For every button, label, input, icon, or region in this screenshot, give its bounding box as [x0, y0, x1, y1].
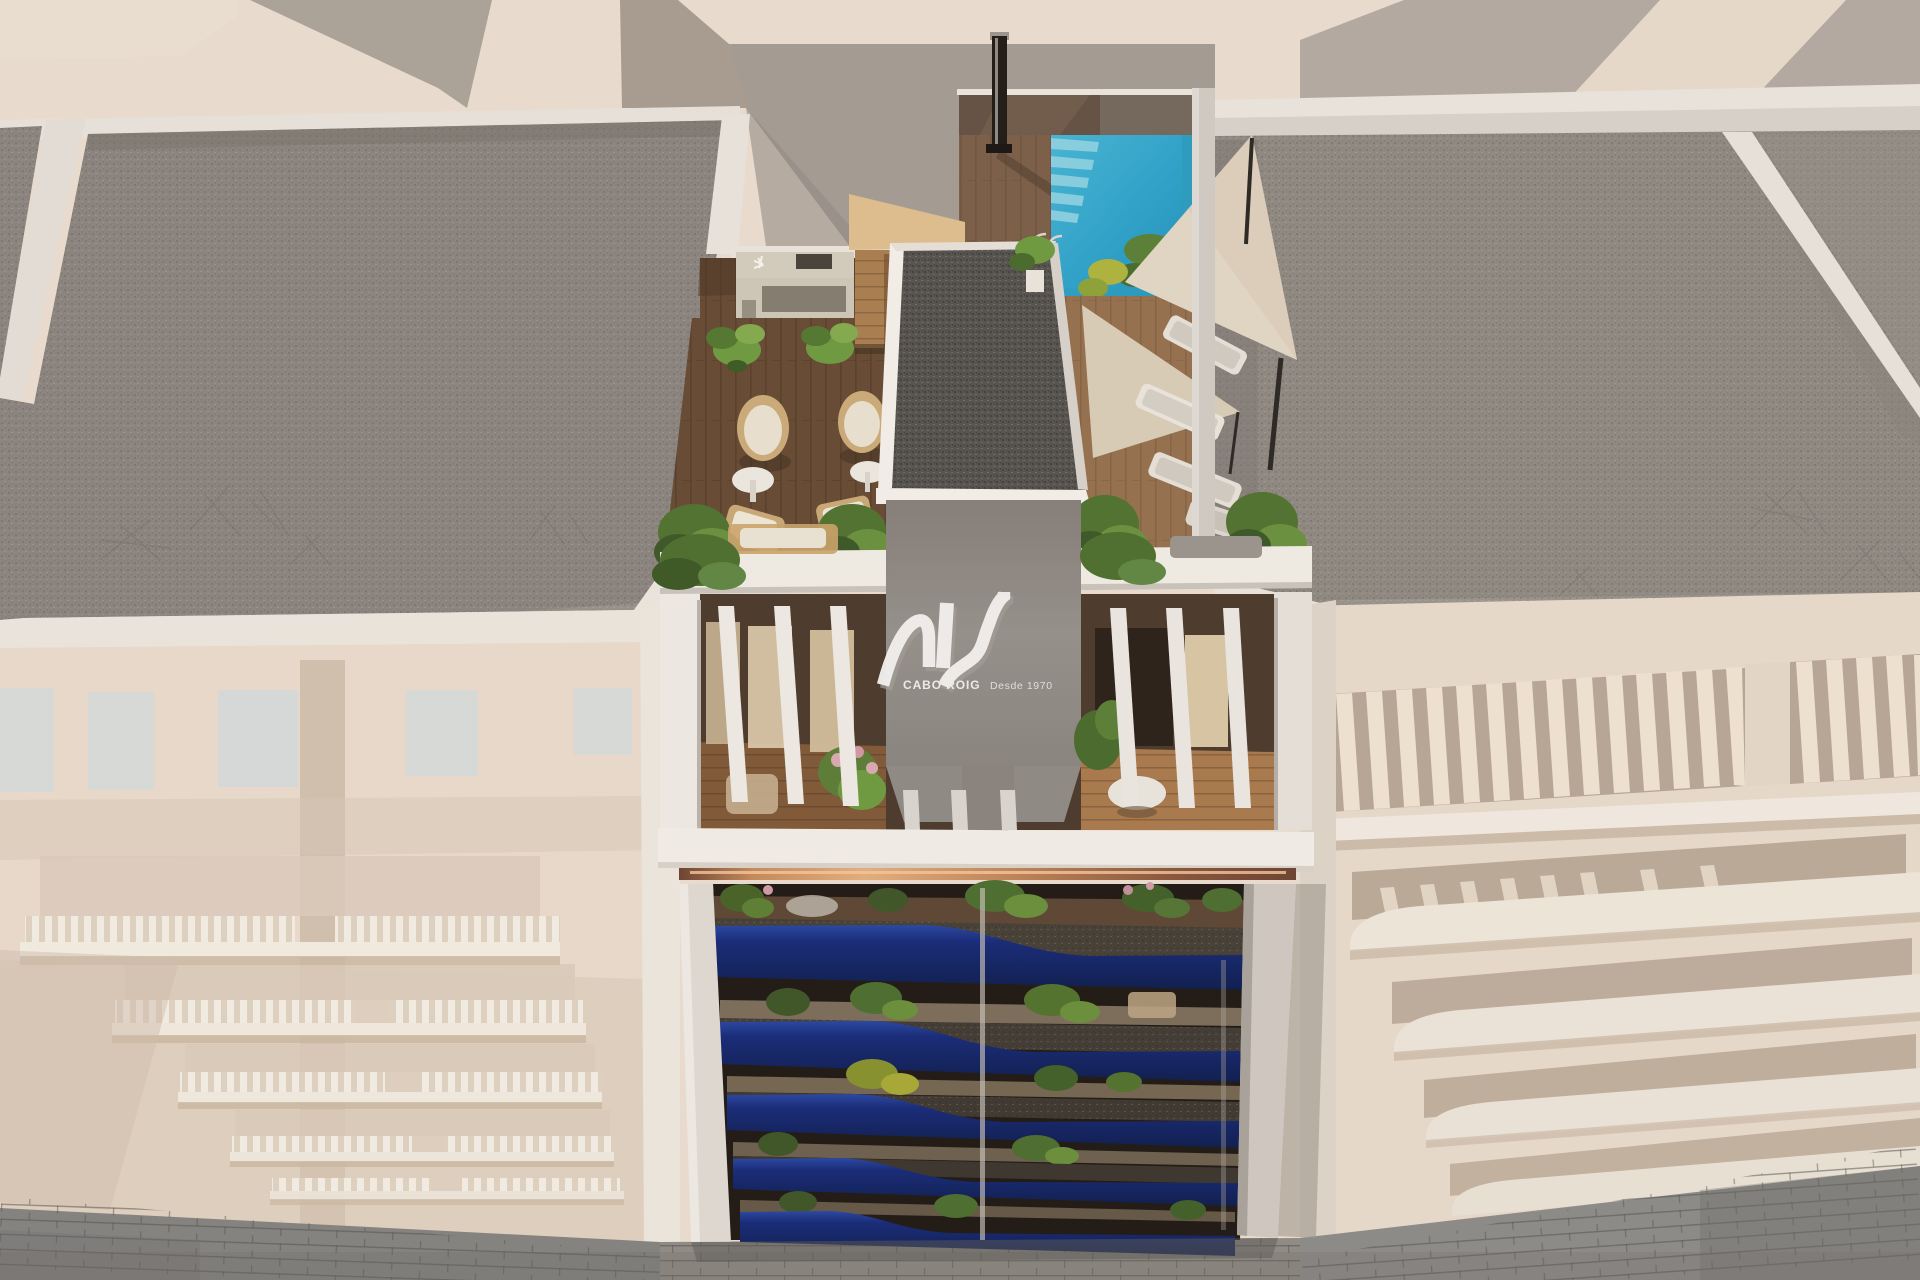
svg-text:CABO ROIG: CABO ROIG [903, 678, 980, 692]
svg-text:Desde 1970: Desde 1970 [990, 680, 1053, 692]
